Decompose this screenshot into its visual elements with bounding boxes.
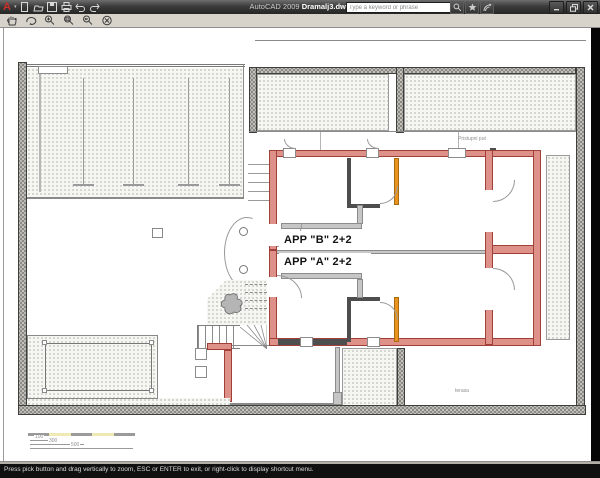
zoom-previous-icon[interactable]	[79, 14, 96, 28]
garage-top-line	[232, 345, 269, 346]
infocenter-buttons	[450, 1, 494, 14]
gate-marker	[38, 66, 68, 74]
apartment-interior-wall-east	[485, 150, 493, 345]
stone-wall-bottom	[18, 405, 586, 415]
apartment-right-wall	[533, 150, 541, 346]
pan-icon[interactable]	[3, 14, 20, 28]
bath-b-wall-west	[347, 158, 351, 208]
terrace-label: terasa	[455, 388, 495, 394]
balcony-door-b1	[283, 148, 296, 158]
apartment-top-wall	[269, 150, 541, 157]
stone-wall-top-right	[249, 67, 576, 74]
stone-wall-right	[576, 67, 585, 415]
infocenter-search-input[interactable]	[346, 2, 452, 13]
bay-column-2	[239, 265, 248, 274]
dim-line-500	[30, 448, 133, 449]
garage-left-wall	[224, 350, 232, 402]
hatch-area-top-right-west	[257, 74, 389, 131]
partition-tee-3	[188, 78, 189, 186]
partition-tee-2	[133, 78, 134, 186]
balcony-door-a1	[300, 337, 313, 347]
command-status-bar: Press pick button and drag vertically to…	[0, 464, 600, 478]
dim-label-300: 300	[48, 439, 58, 444]
pool-notch-3	[42, 388, 47, 393]
terrace-inner-edge-line	[39, 74, 41, 192]
undo-icon[interactable]	[74, 2, 86, 13]
access-road-label: Pristupni put	[440, 136, 504, 142]
door-arc-room-a-east	[493, 268, 515, 290]
dim-label-500: 500	[70, 443, 80, 448]
bath-a-wall-west	[347, 297, 351, 342]
overhead-dash-3	[245, 300, 267, 301]
minimize-button[interactable]	[549, 1, 564, 14]
save-icon[interactable]	[46, 2, 58, 13]
stone-pier-south	[397, 348, 405, 406]
apartment-b-label: APP "B" 2+2	[279, 231, 371, 249]
partition-a-vertical	[357, 279, 363, 298]
pool-notch-2	[149, 340, 154, 345]
title-bar: A ▾ AutoCAD 2009 Dramalj3.dwg ▾	[0, 0, 600, 14]
hatch-area-bottom-center	[342, 348, 397, 406]
terrace-right-line	[243, 64, 244, 199]
restore-button[interactable]	[566, 1, 581, 14]
canvas-left-border	[3, 28, 4, 461]
stone-wall-left	[18, 62, 27, 415]
autocad-logo-icon[interactable]: A	[2, 2, 12, 13]
door-arc-room-b-east	[493, 180, 515, 202]
apartment-left-wall-a	[269, 250, 277, 346]
hatch-strip-east	[546, 155, 570, 340]
courtyard-post	[152, 228, 163, 238]
balcony-door-a2	[367, 337, 380, 347]
window-controls	[549, 1, 598, 14]
access-road-top-line	[249, 131, 576, 132]
favorites-star-icon[interactable]	[465, 1, 479, 14]
close-button[interactable]	[583, 1, 598, 14]
search-scope-caret-icon[interactable]: ▾	[340, 5, 343, 10]
hatch-area-top-left-terrace	[27, 68, 244, 198]
garage-pillar	[333, 392, 342, 405]
dim-label-100: 100	[34, 435, 44, 440]
stone-pier-west	[249, 67, 257, 133]
overhead-dash-1	[245, 284, 267, 285]
communication-center-icon[interactable]	[480, 1, 494, 14]
plot-icon[interactable]	[60, 2, 72, 13]
autocad-window: A ▾ AutoCAD 2009 Dramalj3.dwg ▾	[0, 0, 600, 478]
hatch-area-top-right-east	[404, 74, 576, 131]
zoom-realtime-icon[interactable]	[41, 14, 58, 28]
menu-browser-caret-icon[interactable]: ▾	[14, 5, 17, 10]
wall-stub-salmon	[207, 343, 232, 350]
stone-pier-middle	[396, 67, 404, 133]
porch-column-1	[195, 348, 207, 360]
exit-zoom-icon[interactable]	[98, 14, 115, 28]
redo-icon[interactable]	[88, 2, 100, 13]
quick-access-toolbar: A ▾	[0, 2, 100, 13]
search-icon[interactable]	[450, 1, 464, 14]
zoom-navigation-toolbar	[0, 14, 600, 28]
pool-inner-outline	[45, 343, 152, 391]
balcony-door-b2	[366, 148, 379, 158]
canvas-black-strip	[591, 28, 600, 461]
entry-steps	[248, 164, 270, 204]
new-file-icon[interactable]	[18, 2, 30, 13]
road-boundary-line	[255, 40, 586, 41]
partition-tee-4	[229, 78, 230, 186]
bath-b-wall-south	[347, 204, 380, 208]
overhead-dash-2	[245, 292, 267, 293]
orbit-icon[interactable]	[22, 14, 39, 28]
pool-notch-1	[42, 340, 47, 345]
open-file-icon[interactable]	[32, 2, 44, 13]
overhead-dash-4	[245, 308, 267, 309]
terrace-bottom-line	[27, 197, 244, 199]
apartment-a-label: APP "A" 2+2	[279, 253, 371, 271]
partition-b-vertical	[357, 205, 363, 224]
bay-column-1	[239, 227, 248, 236]
plant-blob	[220, 292, 248, 322]
drawing-canvas[interactable]: Pristupni put terasa	[0, 28, 600, 461]
orange-jamb-b	[394, 158, 399, 205]
entry-door-top	[448, 148, 466, 158]
zoom-window-icon[interactable]	[60, 14, 77, 28]
bath-a-wall-north	[347, 297, 380, 301]
partition-a-horizontal	[281, 273, 362, 279]
path-hatch-bottom-left	[27, 398, 230, 405]
pool-notch-4	[149, 388, 154, 393]
partition-tee-1	[83, 78, 84, 186]
porch-column-2	[195, 366, 207, 378]
